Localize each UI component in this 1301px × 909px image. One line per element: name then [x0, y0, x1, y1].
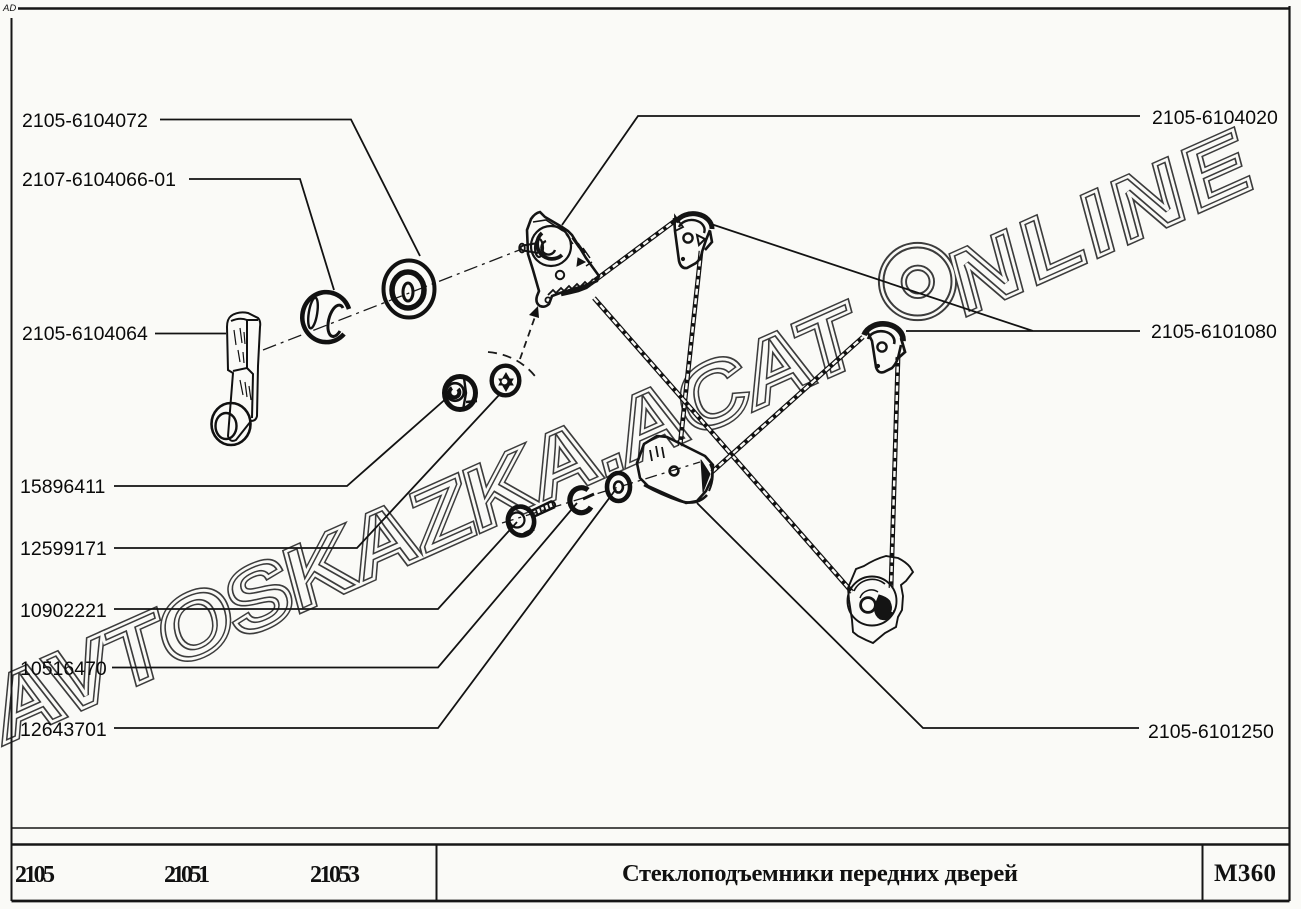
- svg-text:AD: AD: [2, 3, 16, 14]
- svg-text:2105-6104072: 2105-6104072: [22, 110, 148, 132]
- svg-text:10902221: 10902221: [20, 600, 107, 622]
- svg-text:2105-6104020: 2105-6104020: [1152, 107, 1278, 129]
- svg-text:12643701: 12643701: [20, 719, 107, 741]
- svg-text:10516470: 10516470: [20, 658, 107, 680]
- svg-text:Стеклоподъемники передних двер: Стеклоподъемники передних дверей: [622, 860, 1018, 887]
- svg-text:21051: 21051: [164, 862, 210, 888]
- svg-text:М360: М360: [1214, 860, 1276, 887]
- svg-text:15896411: 15896411: [20, 476, 105, 498]
- svg-text:2105-6101250: 2105-6101250: [1148, 721, 1274, 743]
- svg-text:21053: 21053: [310, 862, 360, 888]
- svg-text:12599171: 12599171: [20, 538, 107, 560]
- svg-text:2105-6104064: 2105-6104064: [22, 323, 148, 345]
- svg-text:2105: 2105: [15, 862, 55, 888]
- svg-text:2107-6104066-01: 2107-6104066-01: [22, 169, 176, 191]
- svg-text:2105-6101080: 2105-6101080: [1151, 321, 1277, 343]
